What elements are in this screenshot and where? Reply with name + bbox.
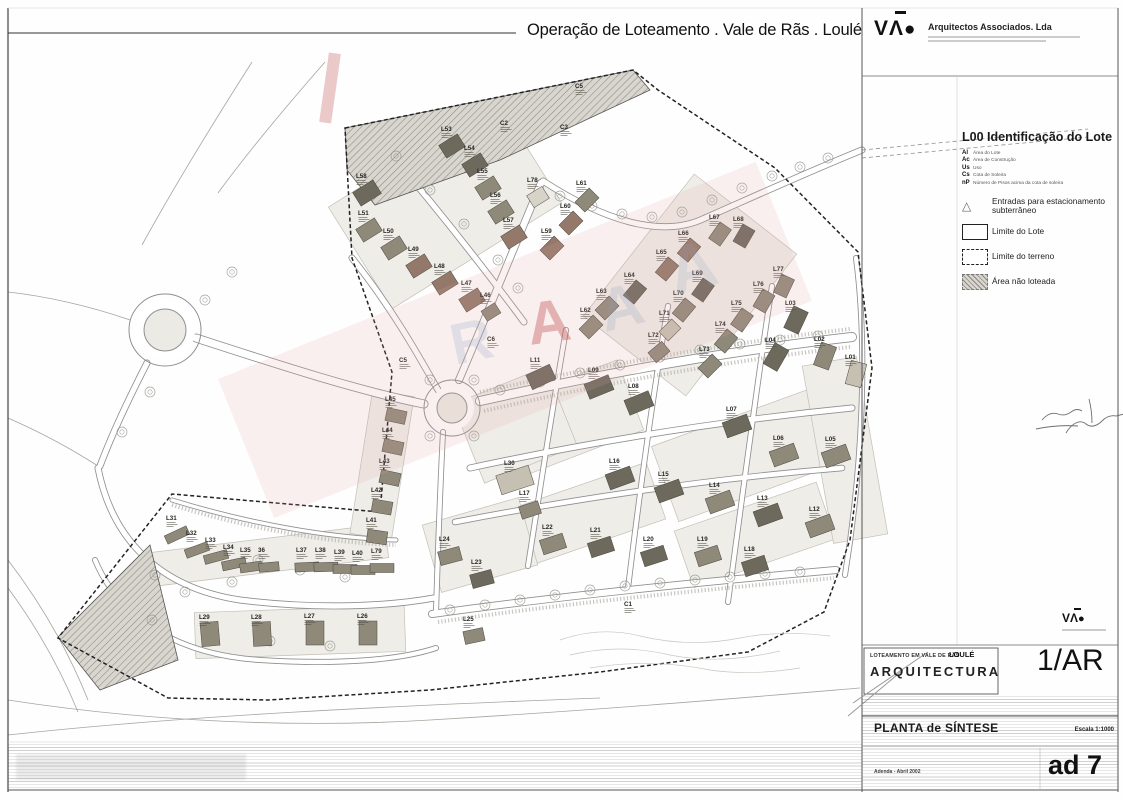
lot-label: L14	[709, 482, 720, 489]
lot-label: L57	[503, 217, 514, 224]
lot-stats-line	[727, 415, 738, 416]
lot-label: L29	[199, 614, 210, 621]
lot-stats-line	[774, 442, 783, 443]
legend-items: △Entradas para estacionamento subterrâne…	[962, 197, 1122, 299]
lot-stats-line	[826, 445, 837, 446]
lot-stats-line	[561, 131, 570, 132]
site-plan-svg: L53L54L55L56L57L58L51L50L49L48L47L46C2C3…	[0, 0, 1123, 800]
lot-stats-line	[464, 627, 471, 628]
sheet-title: Operação de Loteamento . Vale de Rãs . L…	[527, 21, 862, 40]
legend-item-label: Limite do terreno	[992, 252, 1118, 261]
lot-stats-line	[846, 361, 855, 362]
dashed-rect-swatch	[962, 249, 988, 265]
lot-stats-line	[700, 355, 711, 356]
legend-item: Limite do terreno	[962, 249, 1122, 265]
lot-label: L16	[609, 458, 620, 465]
lot-stats-line	[206, 548, 213, 549]
lot-marker: L25	[463, 616, 485, 644]
lot-label: L24	[439, 536, 450, 543]
lot-label: C3	[560, 124, 568, 131]
lot-stats-line	[353, 557, 362, 558]
lot-stats-line	[241, 554, 250, 555]
lot-stats-line	[810, 517, 817, 518]
lot-stats-line	[305, 620, 314, 621]
lot-stats-line	[259, 556, 270, 557]
lot-label: L54	[464, 145, 475, 152]
tree-icon	[227, 267, 237, 277]
lot-stats-line	[297, 558, 304, 559]
tree-icon	[767, 171, 777, 181]
lot-stats-line	[505, 467, 514, 468]
lot-stats-line	[316, 554, 325, 555]
legend-item: Área não loteada	[962, 274, 1122, 290]
lot-stats-line	[167, 524, 178, 525]
lot-stats-line	[206, 546, 217, 547]
lot-stats-line	[577, 189, 588, 190]
lot-stats-line	[698, 547, 705, 548]
lot-label: L79	[371, 548, 382, 555]
tree-icon	[180, 587, 190, 597]
lot-stats-line	[465, 152, 474, 153]
lot-stats-line	[700, 357, 707, 358]
lot-stats-line	[440, 543, 449, 544]
firm-address-line	[928, 40, 1046, 42]
lot-label: L31	[166, 515, 177, 522]
lot-stats-line	[409, 255, 420, 256]
lot-stats-line	[464, 623, 473, 624]
roundabout	[129, 294, 201, 366]
lot-label: L55	[477, 168, 488, 175]
revision-note: Adenda - Abril 2002	[874, 769, 921, 775]
lot-stats-line	[504, 228, 511, 229]
lot-stats-line	[561, 212, 572, 213]
lot-label: L02	[814, 336, 825, 343]
lot-stats-line	[442, 133, 451, 134]
lot-stats-line	[465, 156, 472, 157]
lot-stats-line	[629, 390, 638, 391]
lot-stats-line	[745, 555, 756, 556]
building	[463, 628, 485, 645]
legend-abbrev-row: CsCota de Soleira	[962, 172, 1063, 179]
firm-name: Arquitectos Associados. Lda	[928, 22, 1052, 32]
lot-stats-line	[815, 343, 824, 344]
lot-stats-line	[335, 556, 344, 557]
lot-label: L38	[315, 547, 326, 554]
logo-macron	[895, 11, 906, 14]
lot-stats-line	[241, 558, 248, 559]
lot-stats-line	[591, 534, 600, 535]
lot-stats-line	[710, 489, 719, 490]
lot-stats-line	[297, 554, 306, 555]
handwritten-signature	[1036, 399, 1123, 433]
lot-stats-line	[358, 620, 367, 621]
legend-item: △Entradas para estacionamento subterrâne…	[962, 197, 1122, 215]
lot-stats-line	[543, 535, 550, 536]
lot-stats-line	[815, 347, 822, 348]
lot-stats-line	[316, 556, 327, 557]
lot-marker: L20	[640, 536, 667, 567]
lot-stats-line	[504, 226, 515, 227]
lot-stats-line	[745, 553, 754, 554]
lot-label: L05	[825, 436, 836, 443]
firm-address-line	[928, 36, 1080, 38]
lot-stats-line	[577, 191, 584, 192]
lot-stats-line	[359, 221, 366, 222]
lot-label: L21	[590, 527, 601, 534]
lot-stats-line	[372, 498, 379, 499]
lot-stats-line	[435, 274, 442, 275]
faded-stamp	[16, 754, 246, 780]
lot-stats-line	[187, 537, 196, 538]
lot-stats-line	[810, 513, 819, 514]
tree-icon	[200, 295, 210, 305]
lot-label: L04	[765, 337, 776, 344]
lot-stats-line	[357, 182, 368, 183]
firm-logo: VΛ●	[874, 18, 917, 39]
lot-label: L40	[352, 550, 363, 557]
lot-stats-line	[200, 625, 207, 626]
lot-stats-line	[357, 180, 366, 181]
lot-stats-line	[358, 622, 369, 623]
lot-stats-line	[409, 257, 416, 258]
lot-stats-line	[659, 482, 666, 483]
lot-label: L33	[205, 537, 216, 544]
lot-label: L51	[358, 210, 369, 217]
lot-stats-line	[372, 496, 383, 497]
lot-stats-line	[353, 561, 360, 562]
lot-label: L28	[251, 614, 262, 621]
lot-stats-line	[576, 94, 583, 95]
lot-stats-line	[629, 394, 636, 395]
lot-label: L48	[434, 263, 445, 270]
lot-stats-line	[372, 557, 383, 558]
lot-stats-line	[335, 558, 346, 559]
project-name: LOTEAMENTO EM VALE DE RÃS	[870, 653, 960, 659]
lot-stats-line	[727, 413, 736, 414]
lot-label: L35	[240, 547, 251, 554]
lot-label: L37	[296, 547, 307, 554]
lot-stats-line	[504, 224, 513, 225]
lot-label: L18	[744, 546, 755, 553]
lot-label: L12	[809, 506, 820, 513]
lot-stats-line	[200, 623, 211, 624]
lot-stats-line	[372, 555, 381, 556]
lot-stats-line	[478, 179, 485, 180]
lot-label: L56	[490, 192, 501, 199]
lot-label: C5	[575, 83, 583, 90]
lot-stats-line	[745, 557, 752, 558]
lot-stats-line	[465, 154, 476, 155]
watermark-glyph: A	[522, 285, 574, 357]
lot-marker: L60	[559, 203, 583, 235]
drawing-sheet: L53L54L55L56L57L58L51L50L49L48L47L46C2C3…	[0, 0, 1123, 800]
lot-label: L73	[699, 346, 710, 353]
lot-stats-line	[520, 497, 529, 498]
lot-stats-line	[305, 622, 316, 623]
lot-label: L50	[383, 228, 394, 235]
lot-stats-line	[698, 545, 709, 546]
lot-stats-line	[353, 559, 364, 560]
lot-stats-line	[786, 311, 793, 312]
lot-stats-line	[367, 526, 378, 527]
lot-stats-line	[187, 541, 194, 542]
lot-stats-line	[357, 184, 364, 185]
legend-abbrev-row: nPNúmero de Pisos acima da cota de solei…	[962, 180, 1063, 187]
lot-stats-line	[625, 612, 632, 613]
lot-stats-line	[252, 625, 259, 626]
lot-stats-line	[167, 522, 176, 523]
lot-stats-line	[409, 253, 418, 254]
lot-label: L25	[463, 616, 474, 623]
lot-label: L13	[757, 495, 768, 502]
building	[200, 621, 220, 646]
municipality: LOULÉ	[949, 650, 974, 659]
drawing-scale: Escala 1:1000	[1030, 727, 1114, 733]
legend-item: Limite do Lote	[962, 224, 1122, 240]
lot-stats-line	[520, 501, 527, 502]
lot-stats-line	[367, 528, 374, 529]
lot-stats-line	[758, 506, 765, 507]
lot-stats-line	[561, 214, 568, 215]
lot-label: L34	[223, 544, 234, 551]
lot-stats-line	[358, 624, 365, 625]
lot-stats-line	[335, 560, 342, 561]
firm-logo-small: VΛ●	[1062, 612, 1085, 625]
tree-icon	[227, 577, 237, 587]
lot-stats-line	[659, 478, 668, 479]
building	[640, 545, 667, 567]
lot-stats-line	[610, 465, 619, 466]
lot-stats-line	[826, 447, 833, 448]
building	[259, 562, 280, 573]
lot-label: L06	[773, 435, 784, 442]
lot-stats-line	[472, 566, 481, 567]
lot-stats-line	[629, 392, 640, 393]
lot-stats-line	[224, 555, 231, 556]
lot-stats-line	[359, 219, 370, 220]
lot-stats-line	[252, 621, 261, 622]
lot-stats-line	[766, 348, 773, 349]
lot-stats-line	[766, 346, 777, 347]
lot-label: L60	[560, 203, 571, 210]
lot-label: L32	[186, 530, 197, 537]
lot-stats-line	[187, 539, 198, 540]
lot-stats-line	[542, 237, 553, 238]
lot-stats-line	[501, 129, 512, 130]
lot-stats-line	[440, 545, 451, 546]
lot-stats-line	[561, 210, 570, 211]
lot-label: L07	[726, 406, 737, 413]
lot-label: L53	[441, 126, 452, 133]
lot-stats-line	[542, 239, 549, 240]
lot-label: L58	[356, 173, 367, 180]
lot-stats-line	[305, 624, 312, 625]
lot-stats-line	[774, 446, 781, 447]
lot-stats-line	[710, 491, 721, 492]
lot-stats-line	[200, 621, 209, 622]
firm-caption-line	[1062, 629, 1106, 631]
lot-stats-line	[561, 133, 572, 134]
legend-abbreviations: AlÁrea do LoteAcÁrea de ConstruçãoUsUsoC…	[962, 150, 1063, 187]
lot-stats-line	[491, 201, 502, 202]
lot-stats-line	[644, 545, 655, 546]
hatched-rect-swatch	[962, 274, 988, 290]
lot-stats-line	[561, 135, 568, 136]
lot-stats-line	[252, 623, 263, 624]
lot-stats-line	[528, 184, 537, 185]
lot-stats-line	[372, 494, 381, 495]
tree-icon	[117, 427, 127, 437]
lot-stats-line	[472, 570, 479, 571]
lot-stats-line	[442, 137, 449, 138]
lot-stats-line	[610, 469, 617, 470]
lot-stats-line	[259, 558, 266, 559]
lot-stats-line	[528, 188, 535, 189]
building	[370, 564, 394, 573]
lot-label: L19	[697, 536, 708, 543]
lot-label: L20	[643, 536, 654, 543]
lot-stats-line	[591, 538, 598, 539]
lot-stats-line	[774, 444, 785, 445]
building	[366, 529, 388, 545]
lot-label: L78	[527, 177, 538, 184]
lot-stats-line	[435, 270, 444, 271]
lot-stats-line	[710, 493, 717, 494]
lot-label: L26	[357, 613, 368, 620]
lot-stats-line	[528, 186, 539, 187]
lot-stats-line	[435, 272, 446, 273]
legend-abbrev-row: AlÁrea do Lote	[962, 150, 1063, 157]
sheet-number: ad 7	[1048, 750, 1102, 781]
lot-stats-line	[501, 127, 510, 128]
lot-label: L01	[845, 354, 856, 361]
lot-stats-line	[464, 625, 475, 626]
lot-stats-line	[440, 547, 447, 548]
lot-stats-line	[505, 471, 512, 472]
sheet-code: 1/AR	[1037, 644, 1104, 678]
lot-label: L27	[304, 613, 315, 620]
lot-stats-line	[659, 480, 670, 481]
lot-stats-line	[610, 467, 621, 468]
lot-stats-line	[372, 559, 379, 560]
lot-stats-line	[826, 443, 835, 444]
lot-stats-line	[576, 92, 587, 93]
lot-stats-line	[206, 544, 215, 545]
lot-stats-line	[505, 469, 516, 470]
lot-label: L61	[576, 180, 587, 187]
lot-stats-line	[576, 90, 585, 91]
logo-macron	[1074, 608, 1081, 610]
lot-label: L42	[371, 487, 382, 494]
lot-stats-line	[384, 235, 393, 236]
solid-rect-swatch	[962, 224, 988, 240]
lot-stats-line	[577, 187, 586, 188]
lot-stats-line	[766, 344, 775, 345]
lot-label: L41	[366, 517, 377, 524]
lot-stats-line	[259, 554, 268, 555]
lot-label: L30	[504, 460, 515, 467]
lot-stats-line	[224, 551, 233, 552]
discipline: ARQUITECTURA	[870, 664, 1000, 679]
lot-stats-line	[384, 239, 391, 240]
lot-label: 36	[258, 547, 265, 554]
lot-stats-line	[810, 515, 821, 516]
lot-stats-line	[367, 524, 376, 525]
lot-stats-line	[758, 504, 769, 505]
lot-stats-line	[591, 536, 602, 537]
lot-stats-line	[815, 345, 826, 346]
lot-stats-line	[478, 175, 487, 176]
contour-lines	[560, 632, 830, 673]
tree-icon	[145, 387, 155, 397]
lot-stats-line	[700, 353, 709, 354]
lot-stats-line	[384, 237, 395, 238]
lot-stats-line	[442, 135, 453, 136]
legend-item-label: Área não loteada	[992, 277, 1118, 286]
drawing-title: PLANTA de SÍNTESE	[874, 721, 998, 735]
parking-entrance-icon: △	[962, 200, 971, 212]
lot-label: L49	[408, 246, 419, 253]
lot-label: L59	[541, 228, 552, 235]
lot-stats-line	[241, 556, 252, 557]
lot-stats-line	[625, 610, 636, 611]
lot-label: L17	[519, 490, 530, 497]
lot-stats-line	[501, 131, 508, 132]
lot-stats-line	[625, 608, 634, 609]
lot-stats-line	[491, 199, 500, 200]
lot-stats-line	[520, 499, 531, 500]
tree-icon	[493, 255, 503, 265]
lot-label: L08	[628, 383, 639, 390]
lot-stats-line	[846, 365, 853, 366]
legend-title: L00 Identificação do Lote	[962, 130, 1112, 144]
lot-label: L39	[334, 549, 345, 556]
lot-stats-line	[491, 203, 498, 204]
lot-label: L23	[471, 559, 482, 566]
tree-icon	[795, 162, 805, 172]
lot-stats-line	[224, 553, 235, 554]
lot-label: L15	[658, 471, 669, 478]
legend-item-label: Limite do Lote	[992, 227, 1118, 236]
lot-stats-line	[297, 556, 308, 557]
lot-stats-line	[472, 568, 483, 569]
lot-stats-line	[698, 543, 707, 544]
lot-label: C1	[624, 601, 632, 608]
lot-stats-line	[542, 235, 551, 236]
lot-stats-line	[644, 543, 653, 544]
legend-abbrev-row: AcÁrea de Construção	[962, 157, 1063, 164]
lot-stats-line	[316, 558, 323, 559]
lot-marker: C1	[624, 601, 636, 613]
lot-stats-line	[543, 531, 552, 532]
lot-stats-line	[758, 502, 767, 503]
lot-stats-line	[543, 533, 554, 534]
lot-label: L22	[542, 524, 553, 531]
lot-stats-line	[478, 177, 489, 178]
legend-abbrev-row: UsUso	[962, 165, 1063, 172]
lot-stats-line	[727, 417, 734, 418]
legend-item-label: Entradas para estacionamento subterrâneo	[992, 197, 1118, 215]
lot-stats-line	[359, 217, 368, 218]
lot-stats-line	[167, 526, 174, 527]
lot-stats-line	[644, 547, 651, 548]
lot-label: C2	[500, 120, 508, 127]
lot-stats-line	[846, 363, 857, 364]
